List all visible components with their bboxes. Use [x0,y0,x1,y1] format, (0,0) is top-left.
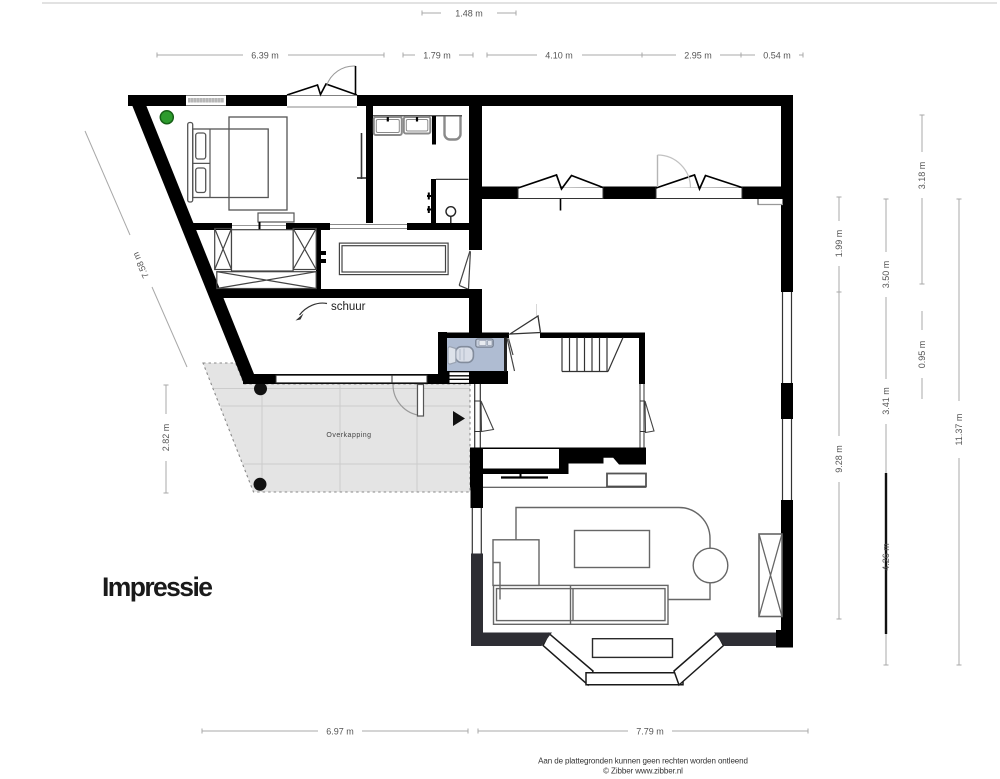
svg-text:1.79 m: 1.79 m [423,51,451,61]
svg-text:6.97 m: 6.97 m [326,727,354,737]
svg-text:9.28 m: 9.28 m [834,445,844,473]
svg-text:3.50 m: 3.50 m [881,261,891,289]
svg-text:schuur: schuur [331,301,366,313]
svg-text:3.41 m: 3.41 m [881,387,891,415]
svg-text:3.18 m: 3.18 m [917,162,927,190]
svg-text:2.95 m: 2.95 m [684,51,712,61]
svg-text:7.79 m: 7.79 m [636,727,664,737]
svg-text:4.10 m: 4.10 m [545,51,573,61]
svg-text:2.82 m: 2.82 m [161,424,171,452]
svg-text:1.99 m: 1.99 m [834,230,844,258]
svg-text:Aan de plattegronden kunnen ge: Aan de plattegronden kunnen geen rechten… [538,757,748,766]
svg-text:Overkapping: Overkapping [326,432,371,439]
svg-text:6.39 m: 6.39 m [251,51,279,61]
svg-text:1.48 m: 1.48 m [455,9,483,19]
svg-text:4.26 m: 4.26 m [881,543,891,571]
svg-text:Impressie: Impressie [102,572,212,602]
svg-text:0.54 m: 0.54 m [763,51,791,61]
svg-text:0.95 m: 0.95 m [917,341,927,369]
svg-text:© Zibber www.zibber.nl: © Zibber www.zibber.nl [603,767,683,776]
svg-text:11.37 m: 11.37 m [954,414,964,446]
